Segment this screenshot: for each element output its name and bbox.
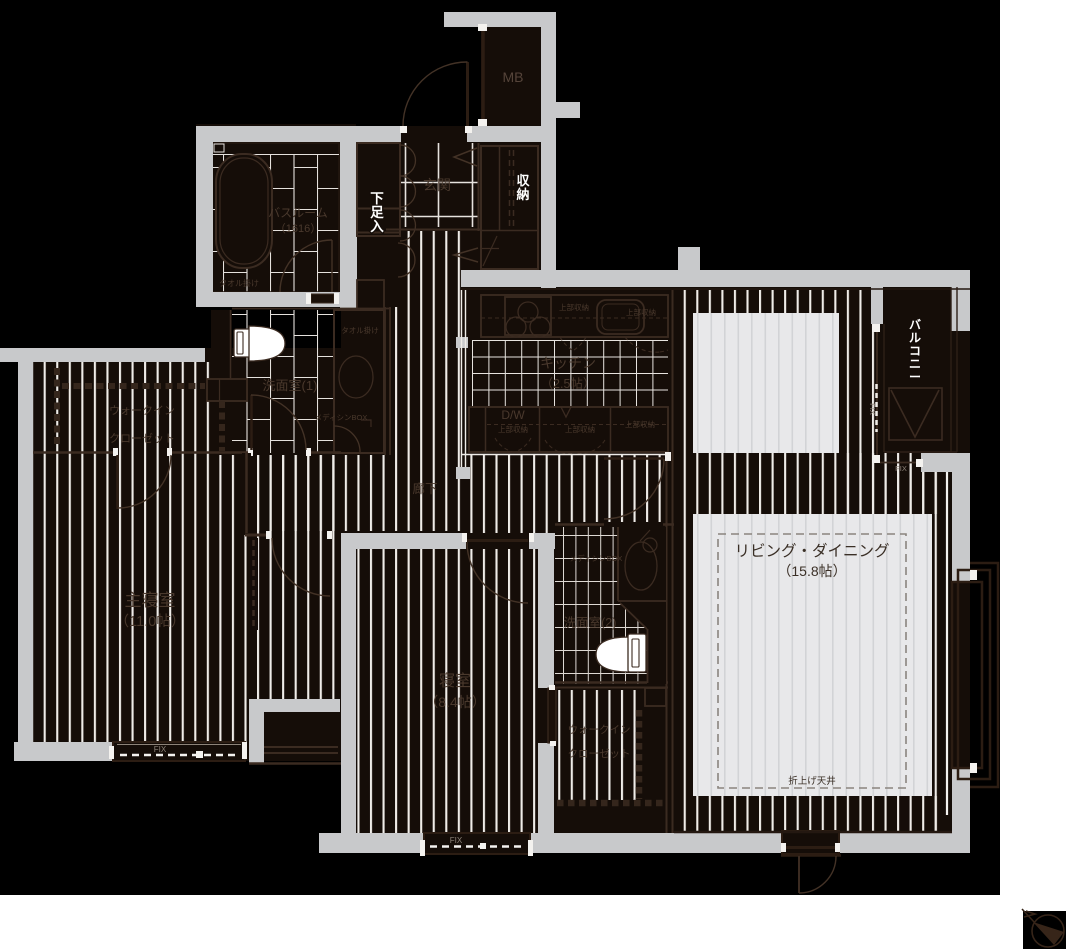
svg-text:上部収納: 上部収納 — [565, 424, 595, 434]
svg-text:上部収納: 上部収納 — [625, 419, 655, 429]
svg-text:キッチン: キッチン — [540, 355, 596, 371]
svg-text:洗面室(1): 洗面室(1) — [263, 378, 318, 393]
svg-text:ウォークイン: ウォークイン — [109, 404, 175, 417]
svg-text:D/W: D/W — [501, 408, 525, 422]
svg-text:リビング・ダイニング: リビング・ダイニング — [734, 542, 889, 560]
svg-text:主寝室: 主寝室 — [125, 590, 176, 610]
svg-text:（2.5帖）: （2.5帖） — [541, 376, 596, 391]
svg-text:ウォークイン: ウォークイン — [568, 724, 631, 736]
svg-text:ル: ル — [909, 331, 921, 345]
svg-text:上部収納: 上部収納 — [559, 302, 589, 312]
svg-text:タオル掛け: タオル掛け — [219, 278, 259, 288]
svg-text:下: 下 — [370, 191, 384, 206]
svg-text:収: 収 — [516, 173, 530, 188]
svg-text:コ: コ — [909, 344, 921, 358]
svg-text:タオル掛け: タオル掛け — [341, 325, 379, 335]
svg-text:（8.4帖）: （8.4帖） — [424, 694, 485, 710]
svg-text:FIX: FIX — [895, 464, 907, 473]
svg-text:洗面室(2): 洗面室(2) — [564, 615, 617, 630]
svg-text:廊下: 廊下 — [412, 481, 437, 496]
svg-text:FIX: FIX — [450, 836, 463, 845]
svg-text:MB: MB — [503, 69, 524, 85]
svg-text:FIX: FIX — [154, 745, 167, 754]
svg-text:バスルーム: バスルーム — [268, 206, 328, 220]
svg-text:寝室: 寝室 — [439, 671, 471, 690]
svg-text:クローゼット: クローゼット — [109, 432, 175, 445]
svg-text:入: 入 — [370, 219, 384, 234]
svg-text:折上げ天井: 折上げ天井 — [788, 775, 836, 787]
svg-text:上部収納: 上部収納 — [626, 307, 656, 317]
svg-text:メディシンBOX: メディシンBOX — [315, 412, 368, 422]
svg-text:上部収納: 上部収納 — [498, 424, 528, 434]
svg-text:ー: ー — [909, 370, 921, 384]
svg-text:（1616）: （1616） — [275, 222, 321, 235]
svg-text:クローゼット: クローゼット — [568, 748, 631, 760]
svg-text:（11.0帖）: （11.0帖） — [115, 613, 186, 630]
svg-text:玄関: 玄関 — [423, 177, 451, 193]
svg-text:バ: バ — [909, 318, 921, 332]
svg-text:ニ: ニ — [909, 357, 921, 371]
svg-text:FIX: FIX — [868, 403, 877, 415]
svg-text:納: 納 — [516, 187, 529, 202]
svg-text:（15.8帖）: （15.8帖） — [777, 563, 846, 579]
svg-text:足: 足 — [370, 205, 384, 220]
svg-text:メディシンBOX: メディシンBOX — [570, 553, 623, 563]
